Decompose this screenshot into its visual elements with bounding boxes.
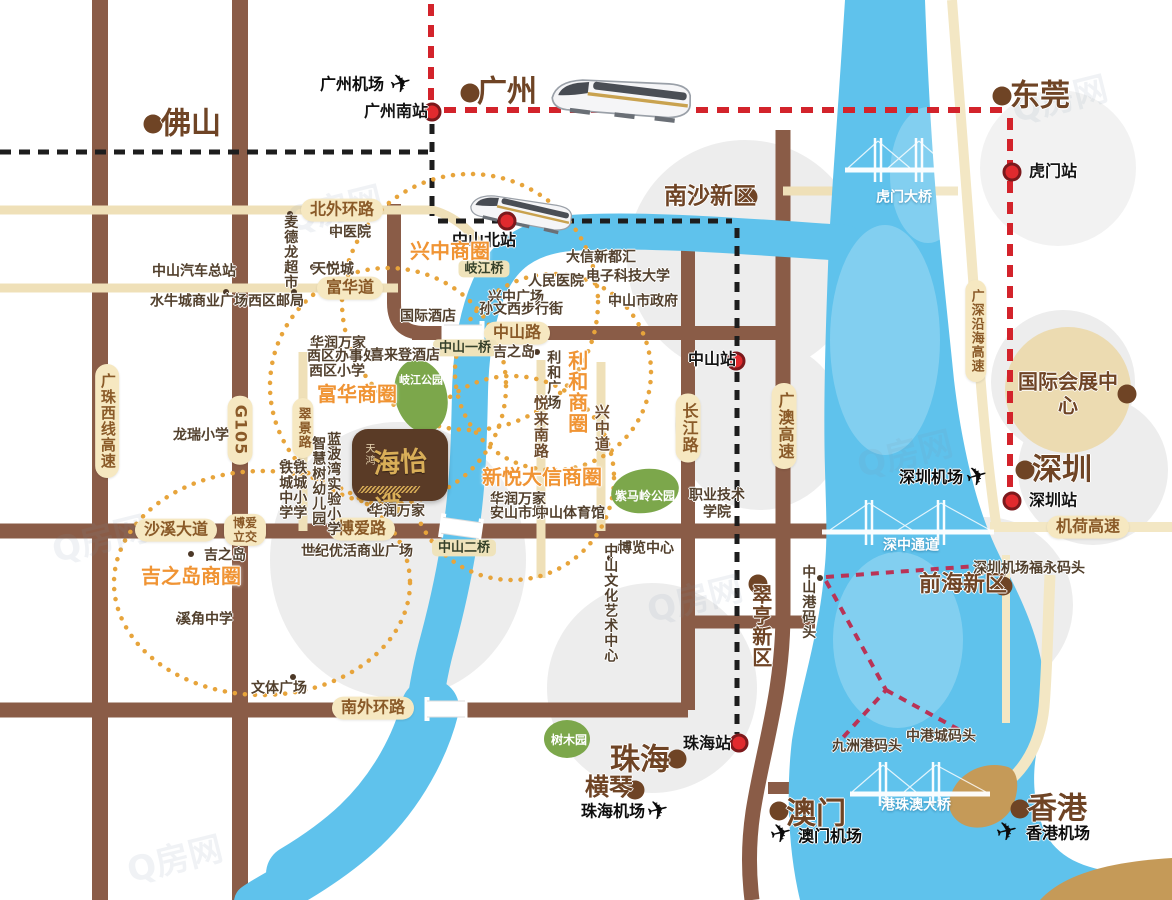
hongkong-airport-label: 香港机场 [1026, 825, 1090, 844]
poi-intl-expo-center: 国际会展中心 [1016, 370, 1120, 417]
qijiang-park-label: 岐江公园 [399, 375, 443, 388]
road-guangao-expressway: 广澳高速 [772, 383, 797, 469]
poi-label: 博览中心 [618, 541, 674, 558]
city-foshan: 佛山 [161, 106, 221, 141]
poi-label: 中山文化艺术中心 [602, 543, 619, 663]
poi-label: 蓝波湾实验小学 [325, 432, 342, 537]
boai-interchange: 博爱 立交 [224, 514, 266, 546]
road-south-outer-ring: 南外环路 [332, 697, 414, 720]
guangzhou-airport-label: 广州机场 [320, 76, 384, 95]
poi-label: 西区小学 [309, 364, 365, 381]
city-shenzhen: 深圳 [1032, 452, 1092, 487]
poi-label: 铁城小学 [291, 460, 308, 520]
road-fuhua-dao: 富华道 [317, 277, 383, 300]
city-dongguan-dot [993, 87, 1012, 106]
city-nansha-new-district: 南沙新区 [664, 183, 756, 210]
road-guangzhu-west-expressway: 广珠西线高速 [95, 364, 119, 478]
poi-label: 深圳机场福永码头 [973, 561, 1085, 578]
poi-label-dot [188, 551, 194, 557]
logo-swoosh-decoration [358, 486, 421, 493]
road-g105: G105 [228, 396, 253, 465]
poi-label-dot [290, 674, 296, 680]
poi-label: 天悦城 [312, 262, 354, 279]
poi-label: 世纪优活商业广场 [301, 544, 413, 561]
station-humen-dot [1003, 163, 1022, 182]
xinyue-daxin-business-circle: 新悦大信商圈 [482, 466, 602, 490]
poi-label: 吉之岛 [493, 345, 535, 362]
road-changjiang-road: 长江路 [676, 394, 701, 463]
road-jihe-expressway: 机荷高速 [1047, 516, 1129, 539]
city-hengqin: 横琴 [585, 773, 633, 801]
city-hongkong: 香港 [1027, 791, 1087, 826]
poi-label: 中山市政府 [608, 294, 678, 311]
poi-label: 西区邮局 [248, 294, 304, 311]
station-zhuhai-dot [730, 734, 749, 753]
station-zhongshan-north-dot [498, 212, 517, 231]
poi-label: 职业技术 学院 [689, 487, 745, 520]
location-map: 天鸿 海怡湾 佛山广州东莞南沙新区深圳前海新区国际会展中心翠亨新区珠海横琴澳门香… [0, 0, 1172, 900]
zhongshan-port-pier: 中山港码头 [800, 565, 817, 640]
poi-label: 中医院 [329, 225, 371, 242]
jusco-business-circle: 吉之岛商圈 [141, 565, 241, 589]
poi-label: 大信新都汇 [566, 250, 636, 267]
xingzhong-business-circle: 兴中商圈 [410, 240, 490, 264]
station-zhuhai: 珠海站 [683, 735, 731, 754]
poi-label: 水牛城商业广场 [150, 294, 248, 311]
poi-label: 麦德龙超市 [282, 215, 299, 290]
poi-intl-expo-center-dot [1118, 385, 1137, 404]
city-guangzhou: 广州 [477, 74, 537, 109]
poi-label: 喜来登酒店 [370, 348, 440, 365]
poi-label: 中山体育馆 [535, 506, 605, 523]
city-dongguan: 东莞 [1010, 78, 1070, 113]
road-shaxi-avenue: 沙溪大道 [135, 519, 217, 542]
fuhua-business-circle: 富华商圈 [317, 383, 397, 407]
city-foshan-dot [144, 115, 163, 134]
road-north-outer-ring: 北外环路 [301, 199, 383, 222]
zhongshan-2nd-bridge-label: 中山二桥 [432, 539, 496, 556]
poi-label: 华润万家 [369, 504, 425, 521]
station-shenzhen: 深圳站 [1029, 492, 1077, 511]
poi-label: 九洲港码头 [832, 739, 902, 756]
zhongshan-1st-bridge-label: 中山一桥 [433, 339, 497, 356]
zhuhai-airport-label: 珠海机场 [581, 803, 645, 822]
train-icon-guangzhou [551, 70, 693, 127]
poi-label: 孙文西步行街 [479, 302, 563, 319]
property-logo: 天鸿 海怡湾 [352, 429, 448, 501]
humen-bridge-label: 虎门大桥 [876, 190, 932, 207]
poi-label: 利和广场 [545, 350, 562, 410]
station-zhongshan: 中山站 [688, 351, 736, 370]
poi-label: 龙瑞小学 [173, 428, 229, 445]
zhongshan-port-pier-dot [817, 575, 823, 581]
city-cuiheng-new-district: 翠亨新区 [748, 584, 772, 668]
poi-label: 国际酒店 [400, 309, 456, 326]
lihe-business-circle: 利和商圈 [564, 350, 588, 434]
arboretum-label: 树木园 [551, 733, 587, 747]
poi-label: 中港城码头 [906, 729, 976, 746]
poi-label: 人民医院 [528, 274, 584, 291]
xingzhong-avenue: 兴中道 [592, 404, 610, 452]
station-humen: 虎门站 [1029, 163, 1077, 182]
poi-label: 文体广场 [251, 681, 307, 698]
poi-label: 溪角中学 [177, 612, 233, 629]
hzmb-bridge-label: 港珠澳大桥 [881, 798, 951, 815]
poi-label: 电子科技大学 [586, 269, 670, 286]
zimaling-park-label: 紫马岭公园 [615, 489, 675, 503]
station-shenzhen-dot [1003, 492, 1022, 511]
poi-label: 吉之岛 [204, 548, 246, 565]
poi-label: 中山汽车总站 [152, 264, 236, 281]
station-guangzhou-south: 广州南站 [364, 103, 428, 122]
shenzhen-airport-label: 深圳机场 [899, 469, 963, 488]
shenzhong-corridor-label: 深中通道 [883, 538, 939, 555]
macau-airport-label: 澳门机场 [798, 828, 862, 847]
road-guangshen-coastal-expressway: 广深沿海高速 [965, 280, 986, 382]
